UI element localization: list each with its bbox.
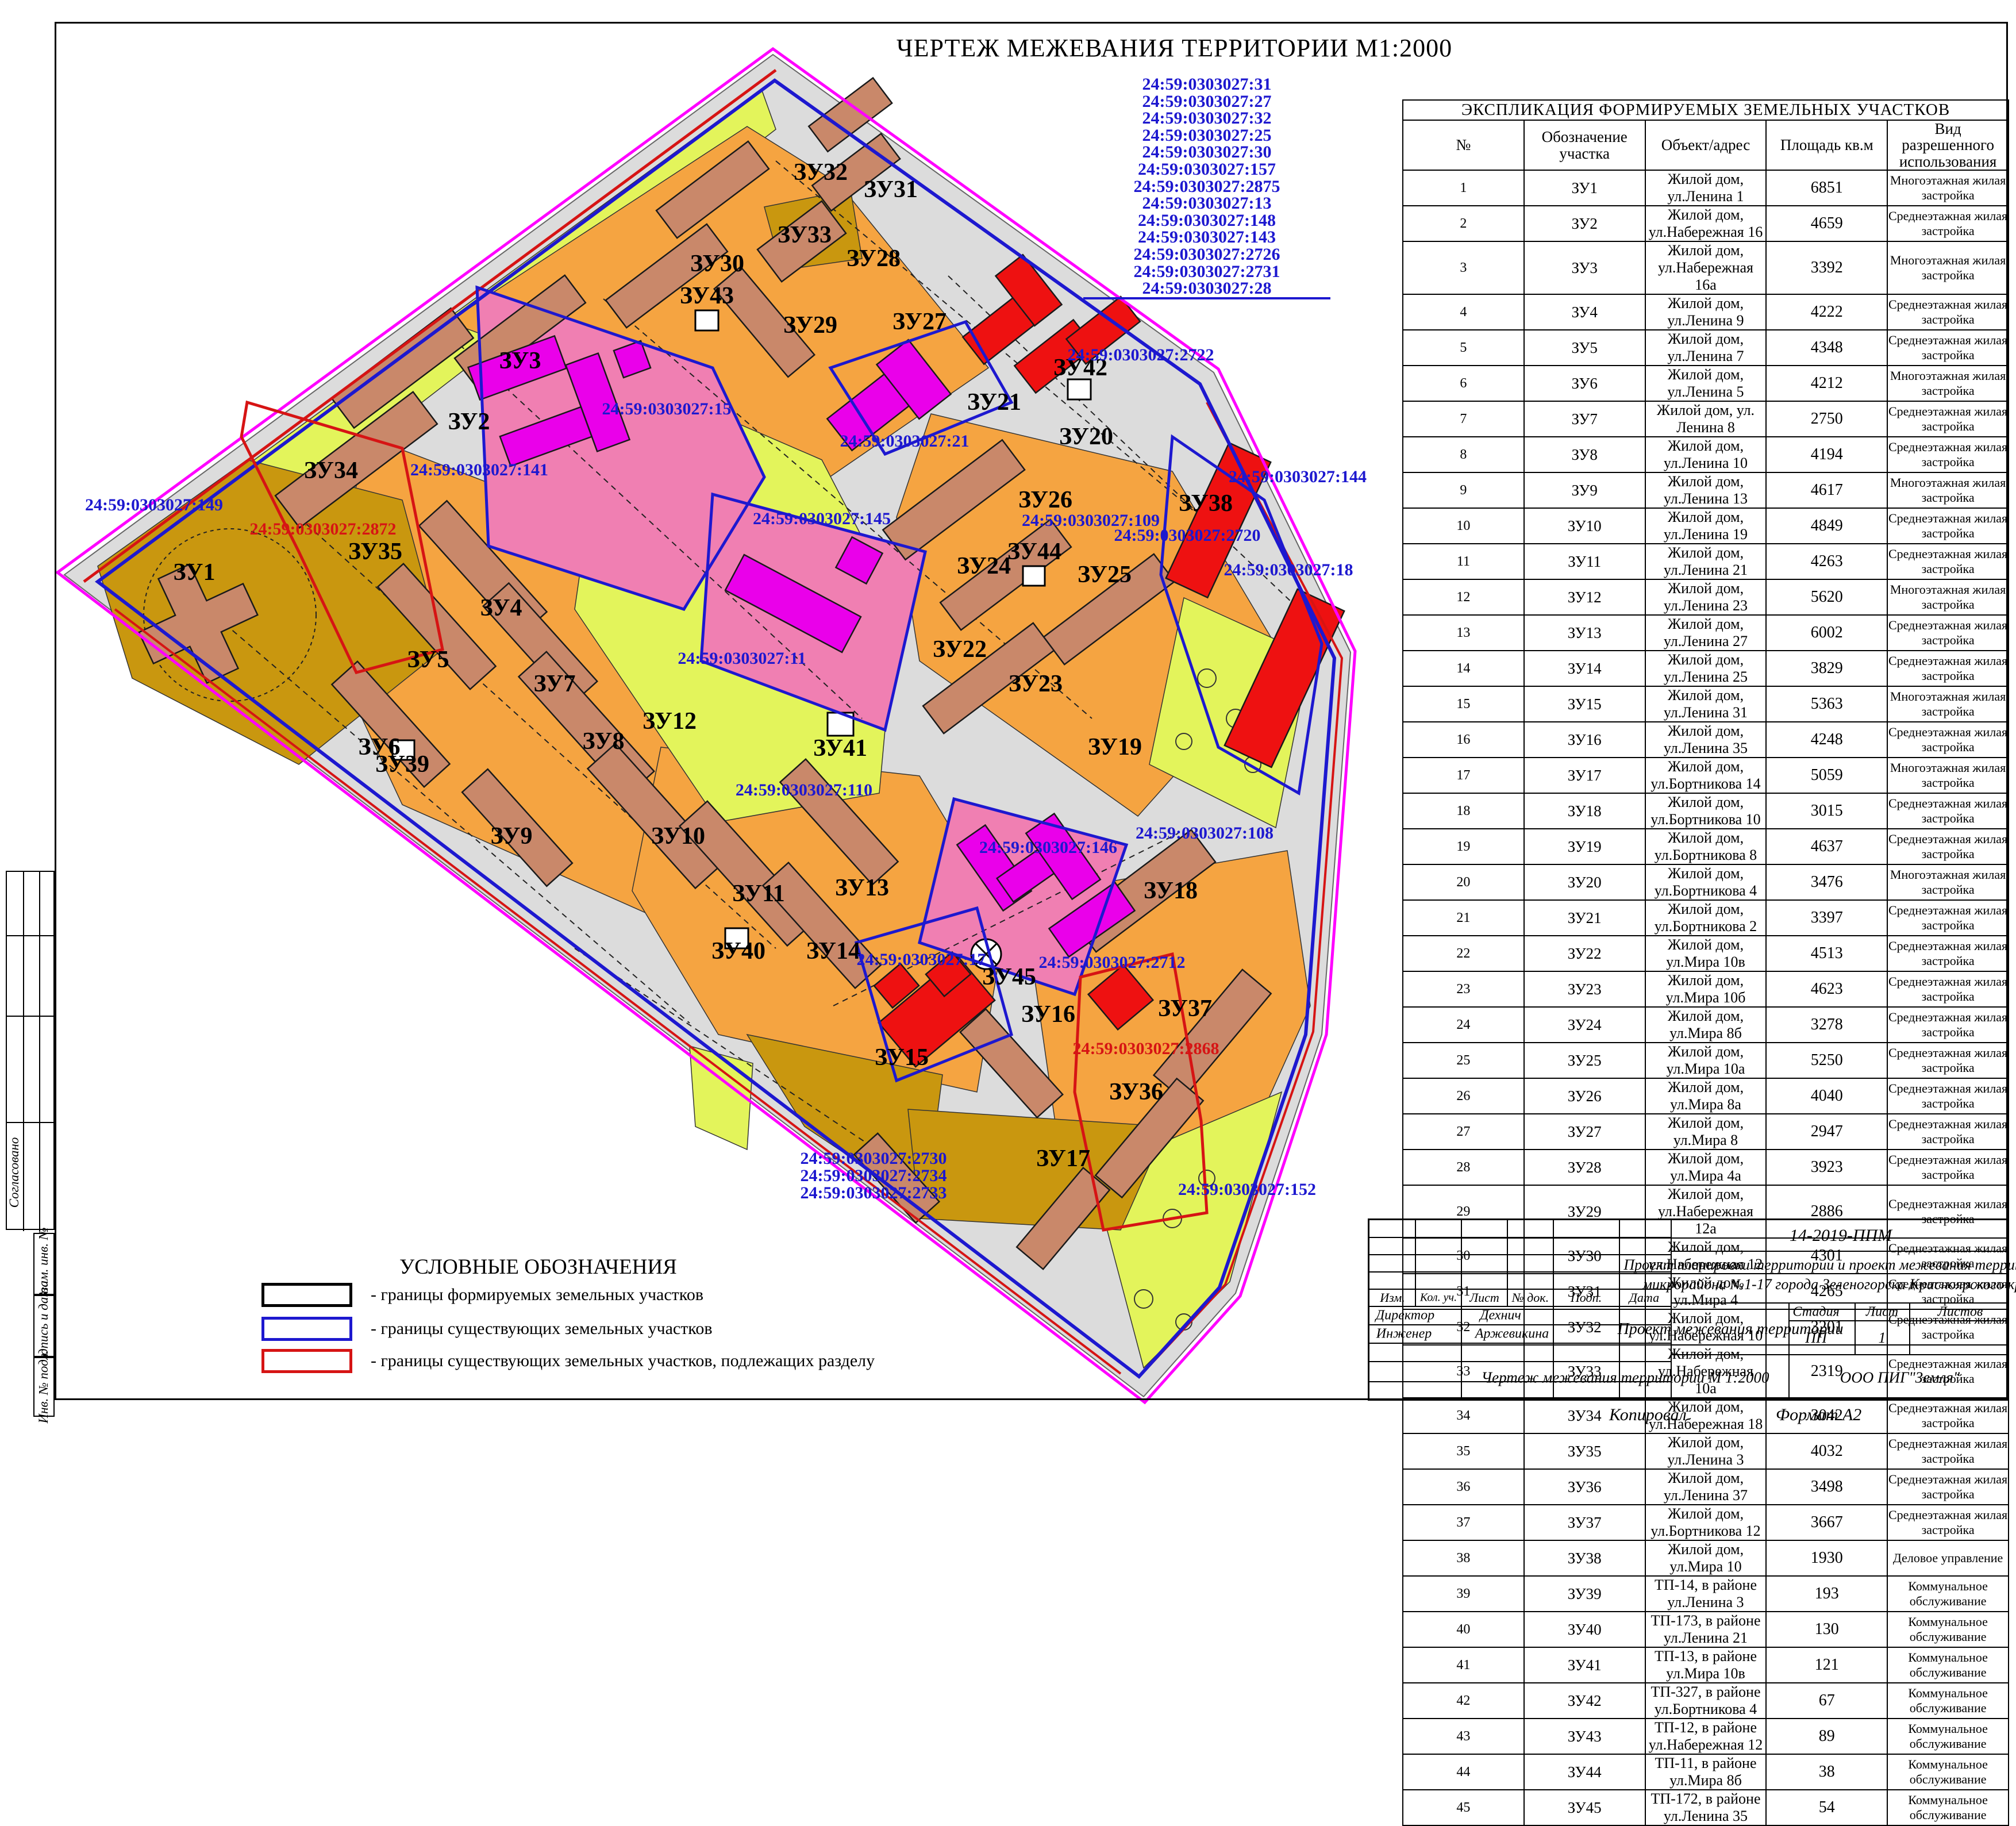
table-title: ЭКСПЛИКАЦИЯ ФОРМИРУЕМЫХ ЗЕМЕЛЬНЫХ УЧАСТК… [1403, 100, 2009, 120]
parcel-label: ЗУ29 [783, 312, 837, 339]
footer-format: Формат А2 [1776, 1405, 1861, 1425]
legend-item-label: - границы существующих земельных участко… [371, 1319, 713, 1338]
explication-table-body: 1 ЗУ1 Жилой дом, ул.Ленина 1 6851 Многоэ… [1403, 170, 2009, 1825]
parcel-label: ЗУ3 [499, 347, 541, 375]
parcel-label: ЗУ19 [1088, 733, 1142, 761]
legend-item-label: - границы существующих земельных участко… [371, 1351, 875, 1370]
table-row: 43 ЗУ43 ТП-12, в районе ул.Набережная 12… [1403, 1719, 2009, 1754]
cadastral-number: 24:59:0303027:2726 [1080, 246, 1333, 263]
sig-name-director: Дехнич [1480, 1308, 1521, 1324]
boundary-swatch [261, 1349, 352, 1373]
cadastral-number: 24:59:0303027:25 [1080, 127, 1333, 144]
parcel-label: ЗУ22 [933, 636, 987, 663]
cadastral-list-underline [1083, 297, 1330, 299]
cadastral-number: 24:59:0303027:28 [1080, 280, 1333, 297]
explication-table: ЭКСПЛИКАЦИЯ ФОРМИРУЕМЫХ ЗЕМЕЛЬНЫХ УЧАСТК… [1402, 99, 2009, 1826]
parcel-label: ЗУ44 [1007, 538, 1061, 566]
drawing-name: Чертеж межевания территории М 1:2000 [1482, 1369, 1769, 1387]
table-row: 6 ЗУ6 Жилой дом, ул.Ленина 5 4212 Многоэ… [1403, 366, 2009, 401]
parcel-label: ЗУ30 [690, 250, 744, 278]
table-row: 39 ЗУ39 ТП-14, в районе ул.Ленина 3 193 … [1403, 1576, 2009, 1612]
map-cadastral-number: 24:59:0303027:141 [410, 460, 548, 480]
parcel-label: ЗУ26 [1018, 486, 1072, 514]
cadastral-number: 24:59:0303027:157 [1080, 161, 1333, 178]
cadastral-number: 24:59:0303027:148 [1080, 212, 1333, 229]
parcel-label: ЗУ31 [864, 176, 918, 203]
map-cadastral-number: 24:59:0303027:11 [678, 649, 806, 668]
sheet: { "sheet": { "title": "ЧЕРТЕЖ МЕЖЕВАНИЯ … [0, 0, 2016, 1425]
hdr-podp: Подп. [1571, 1290, 1602, 1305]
map-cadastral-number: 24:59:0303027:2712 [1039, 953, 1186, 972]
map-cadastral-number: 24:59:0303027:108 [1136, 824, 1274, 843]
parcel-label: ЗУ8 [583, 728, 625, 755]
explication-table-head: ЭКСПЛИКАЦИЯ ФОРМИРУЕМЫХ ЗЕМЕЛЬНЫХ УЧАСТК… [1403, 100, 2009, 170]
table-row: 36 ЗУ36 Жилой дом, ул.Ленина 37 3498 Сре… [1403, 1469, 2009, 1505]
col-header-num: № [1403, 120, 1524, 170]
table-row: 13 ЗУ13 Жилой дом, ул.Ленина 27 6002 Сре… [1403, 615, 2009, 651]
map-cadastral-number: 24:59:0303027:145 [753, 509, 891, 529]
footer-copied-by: Копировал [1609, 1405, 1687, 1425]
parcel-label: ЗУ36 [1109, 1078, 1163, 1106]
parcel-label: ЗУ37 [1158, 995, 1212, 1022]
sheets-label: Листов [1938, 1305, 1983, 1320]
hdr-izm: Изм. [1380, 1290, 1405, 1305]
sheet-value: 1 [1879, 1329, 1886, 1347]
table-row: 34 ЗУ34 Жилой дом, ул.Набережная 18 3042… [1403, 1398, 2009, 1433]
parcel-label: ЗУ24 [957, 552, 1011, 580]
table-row: 21 ЗУ21 Жилой дом, ул.Бортникова 2 3397 … [1403, 900, 2009, 936]
map-cadastral-number: 24:59:0303027:2730 [801, 1149, 947, 1168]
map-cadastral-number: 24:59:0303027:17 [857, 950, 986, 970]
parcel-label: ЗУ13 [835, 874, 889, 902]
parcel-label: ЗУ1 [174, 559, 216, 586]
parcel-label: ЗУ18 [1144, 877, 1198, 905]
parcel-label: ЗУ43 [680, 282, 734, 310]
table-row: 1 ЗУ1 Жилой дом, ул.Ленина 1 6851 Многоэ… [1403, 170, 2009, 206]
hdr-doc: № док. [1512, 1290, 1549, 1305]
table-row: 9 ЗУ9 Жилой дом, ул.Ленина 13 4617 Много… [1403, 472, 2009, 508]
parcel-label: ЗУ40 [711, 937, 765, 965]
parcel-label: ЗУ14 [806, 937, 860, 965]
legend-item: - границы формируемых земельных участков [261, 1283, 703, 1306]
parcel-label: ЗУ7 [534, 670, 576, 698]
table-row: 11 ЗУ11 Жилой дом, ул.Ленина 21 4263 Сре… [1403, 544, 2009, 579]
table-row: 24 ЗУ24 Жилой дом, ул.Мира 8б 3278 Средн… [1403, 1007, 2009, 1043]
parcel-label: ЗУ25 [1078, 561, 1132, 589]
parcel-label: ЗУ10 [651, 822, 705, 850]
hdr-list: Лист [1469, 1290, 1499, 1305]
table-row: 15 ЗУ15 Жилой дом, ул.Ленина 31 5363 Мно… [1403, 686, 2009, 722]
company-name: ООО ПИГ"Земля" [1840, 1369, 1960, 1387]
map-cadastral-number: 24:59:0303027:152 [1178, 1180, 1316, 1200]
cadastral-number: 24:59:0303027:32 [1080, 110, 1333, 127]
table-row: 18 ЗУ18 Жилой дом, ул.Бортникова 10 3015… [1403, 793, 2009, 829]
table-row: 41 ЗУ41 ТП-13, в районе ул.Мира 10в 121 … [1403, 1647, 2009, 1683]
project-name-line1: Проект планировки территории и проект ме… [1623, 1256, 2016, 1274]
parcel-label: ЗУ27 [892, 308, 947, 336]
parcel-label: ЗУ15 [875, 1044, 929, 1071]
table-row: 12 ЗУ12 Жилой дом, ул.Ленина 23 5620 Мно… [1403, 579, 2009, 615]
cadastral-number: 24:59:0303027:27 [1080, 93, 1333, 110]
legend-heading: УСЛОВНЫЕ ОБОЗНАЧЕНИЯ [399, 1255, 677, 1279]
hdr-data: Дата [1629, 1290, 1659, 1305]
legend-item-label: - границы формируемых земельных участков [371, 1285, 703, 1304]
title-block: 14-2019-ППМ Проект планировки территории… [1368, 1218, 2009, 1401]
table-row: 38 ЗУ38 Жилой дом, ул.Мира 10 1930 Делов… [1403, 1540, 2009, 1576]
stage-value: ПП [1805, 1329, 1827, 1347]
table-row: 26 ЗУ26 Жилой дом, ул.Мира 8а 4040 Средн… [1403, 1078, 2009, 1114]
map-cadastral-number: 24:59:0303027:15 [602, 399, 732, 419]
parcel-label: ЗУ11 [732, 880, 785, 908]
drawing-title: ЧЕРТЕЖ МЕЖЕВАНИЯ ТЕРРИТОРИИ М1:2000 [897, 33, 1391, 63]
parcel-label: ЗУ32 [794, 159, 848, 186]
parcel-label: ЗУ2 [448, 408, 490, 436]
sig-name-engineer: Аржевикина [1475, 1327, 1549, 1342]
table-row: 2 ЗУ2 Жилой дом, ул.Набережная 16 4659 С… [1403, 206, 2009, 241]
doc-number: 14-2019-ППМ [1790, 1226, 1892, 1245]
cadastral-number: 24:59:0303027:143 [1080, 229, 1333, 246]
legend-item: - границы существующих земельных участко… [261, 1349, 875, 1372]
map-cadastral-number: 24:59:0303027:2722 [1068, 345, 1214, 365]
table-row: 19 ЗУ19 Жилой дом, ул.Бортникова 8 4637 … [1403, 829, 2009, 864]
map-cadastral-number: 24:59:0303027:149 [85, 495, 223, 515]
parcel-label: ЗУ12 [642, 708, 697, 735]
table-row: 14 ЗУ14 Жилой дом, ул.Ленина 25 3829 Сре… [1403, 651, 2009, 686]
table-row: 10 ЗУ10 Жилой дом, ул.Ленина 19 4849 Сре… [1403, 508, 2009, 544]
table-row: 8 ЗУ8 Жилой дом, ул.Ленина 10 4194 Средн… [1403, 437, 2009, 472]
sig-role-engineer: Инженер [1376, 1327, 1432, 1342]
map-cadastral-number: 24:59:0303027:21 [840, 432, 969, 451]
table-row: 16 ЗУ16 Жилой дом, ул.Ленина 35 4248 Сре… [1403, 722, 2009, 758]
table-row: 42 ЗУ42 ТП-327, в районе ул.Бортникова 4… [1403, 1683, 2009, 1719]
parcel-label: ЗУ17 [1036, 1145, 1090, 1173]
stage-label: Стадия [1792, 1305, 1839, 1320]
table-row: 17 ЗУ17 Жилой дом, ул.Бортникова 14 5059… [1403, 758, 2009, 793]
parcel-label: ЗУ4 [480, 594, 522, 622]
table-row: 23 ЗУ23 Жилой дом, ул.Мира 10б 4623 Сред… [1403, 971, 2009, 1007]
table-row: 3 ЗУ3 Жилой дом, ул.Набережная 16а 3392 … [1403, 241, 2009, 294]
parcel-label: ЗУ33 [778, 221, 832, 249]
legend-item: - границы существующих земельных участко… [261, 1317, 713, 1340]
col-header-use: Вид разрешенного использования [1887, 120, 2009, 170]
table-row: 4 ЗУ4 Жилой дом, ул.Ленина 9 4222 Средне… [1403, 294, 2009, 330]
side-stamp-approved: Согласовано [7, 1137, 22, 1208]
parcel-label: ЗУ9 [491, 822, 533, 850]
cadastral-number: 24:59:0303027:31 [1080, 76, 1333, 93]
map-cadastral-number: 24:59:0303027:18 [1224, 560, 1353, 580]
table-row: 45 ЗУ45 ТП-172, в районе ул.Ленина 35 54… [1403, 1790, 2009, 1825]
parcel-label: ЗУ23 [1009, 670, 1063, 698]
parcel-label: ЗУ5 [407, 646, 449, 674]
boundary-swatch [261, 1283, 352, 1307]
project-name-line2: микрорайона №1-17 города Зеленогорска Кр… [1642, 1276, 2016, 1293]
cadastral-number: 24:59:0303027:2875 [1080, 178, 1333, 195]
map-cadastral-number: 24:59:0303027:2734 [801, 1166, 947, 1186]
parcel-label: ЗУ35 [348, 538, 402, 566]
table-row: 25 ЗУ25 Жилой дом, ул.Мира 10а 5250 Сред… [1403, 1043, 2009, 1078]
parcel-label: ЗУ28 [847, 245, 901, 272]
parcel-label: ЗУ21 [967, 389, 1021, 416]
map-cadastral-number: 24:59:0303027:2720 [1114, 526, 1261, 545]
table-row: 20 ЗУ20 Жилой дом, ул.Бортникова 4 3476 … [1403, 864, 2009, 900]
cadastral-number: 24:59:0303027:30 [1080, 144, 1333, 161]
table-row: 40 ЗУ40 ТП-173, в районе ул.Ленина 21 13… [1403, 1612, 2009, 1647]
col-header-object: Объект/адрес [1645, 120, 1767, 170]
table-row: 44 ЗУ44 ТП-11, в районе ул.Мира 8б 38 Ко… [1403, 1754, 2009, 1790]
parcel-label: ЗУ45 [982, 963, 1036, 991]
table-row: 22 ЗУ22 Жилой дом, ул.Мира 10в 4513 Сред… [1403, 936, 2009, 971]
map-cadastral-number: 24:59:0303027:2733 [801, 1183, 947, 1203]
table-row: 7 ЗУ7 Жилой дом, ул. Ленина 8 2750 Средн… [1403, 401, 2009, 437]
col-header-area: Площадь кв.м [1766, 120, 1887, 170]
cadastral-number-list: 24:59:0303027:3124:59:0303027:2724:59:03… [1080, 76, 1333, 297]
map-cadastral-number: 24:59:0303027:146 [979, 838, 1117, 858]
map-cadastral-number: 24:59:0303027:2872 [250, 520, 397, 539]
side-stamp-inv: Инв. № подл. [36, 1350, 51, 1423]
sheet-label: Лист [1866, 1305, 1898, 1320]
parcel-label: ЗУ39 [375, 751, 429, 778]
table-row: 27 ЗУ27 Жилой дом, ул.Мира 8 2947 Средне… [1403, 1114, 2009, 1150]
parcel-label: ЗУ20 [1059, 423, 1113, 451]
parcel-label: ЗУ34 [304, 457, 358, 485]
boundary-swatch [261, 1317, 352, 1341]
col-header-designation: Обозначение участка [1524, 120, 1645, 170]
map-cadastral-number: 24:59:0303027:2868 [1073, 1039, 1219, 1059]
map-cadastral-number: 24:59:0303027:144 [1229, 467, 1367, 487]
table-row: 28 ЗУ28 Жилой дом, ул.Мира 4а 3923 Средн… [1403, 1150, 2009, 1185]
parcel-label: ЗУ41 [813, 735, 867, 762]
parcel-label: ЗУ16 [1021, 1001, 1075, 1028]
parcel-label: ЗУ38 [1179, 490, 1233, 517]
hdr-kol: Кол. уч. [1420, 1291, 1457, 1305]
table-row: 5 ЗУ5 Жилой дом, ул.Ленина 7 4348 Средне… [1403, 330, 2009, 366]
cadastral-number: 24:59:0303027:13 [1080, 195, 1333, 212]
table-row: 37 ЗУ37 Жилой дом, ул.Бортникова 12 3667… [1403, 1505, 2009, 1540]
map-cadastral-number: 24:59:0303027:110 [736, 781, 872, 800]
cadastral-number: 24:59:0303027:2731 [1080, 263, 1333, 280]
table-row: 35 ЗУ35 Жилой дом, ул.Ленина 3 4032 Сред… [1403, 1433, 2009, 1469]
sig-role-director: Директор [1376, 1308, 1434, 1324]
